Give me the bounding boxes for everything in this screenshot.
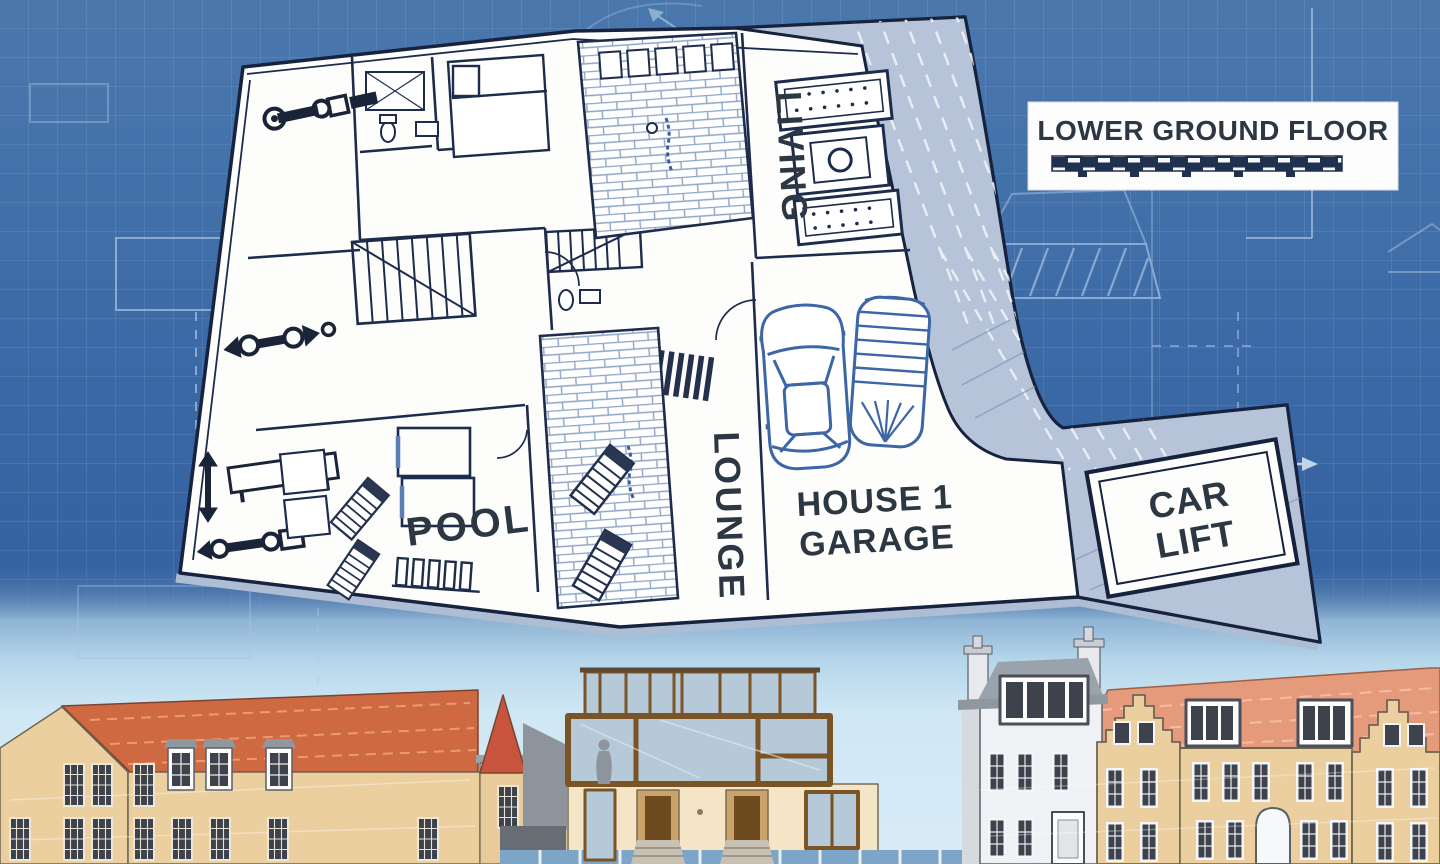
- arched-doorway: [1256, 808, 1290, 864]
- window: [268, 818, 288, 860]
- scene: LIVING POOL LOUNGE HOUSE 1 GARAGE CAR LI…: [0, 0, 1440, 864]
- car-icon: [849, 295, 931, 449]
- window: [10, 818, 30, 860]
- window: [1192, 762, 1210, 802]
- bedroom-bed: [448, 55, 549, 157]
- window: [64, 764, 84, 806]
- window: [1106, 822, 1124, 862]
- room-label-living: LIVING: [768, 90, 816, 224]
- room-label-garage-line2: GARAGE: [798, 518, 955, 564]
- window: [92, 818, 112, 860]
- window: [1016, 818, 1034, 858]
- car-icon: [757, 302, 854, 471]
- window: [988, 752, 1006, 792]
- legend-box: LOWER GROUND FLOOR: [1028, 102, 1398, 190]
- dormer-window: [262, 739, 296, 790]
- window: [210, 818, 230, 860]
- pool-steps-icon: [392, 558, 482, 592]
- window: [1376, 768, 1394, 808]
- window: [1252, 762, 1270, 802]
- flat-dormer: [1298, 700, 1352, 746]
- window: [1410, 768, 1428, 808]
- window: [418, 818, 438, 860]
- glass-door: [585, 790, 615, 860]
- window: [92, 764, 112, 806]
- dormer-window: [164, 739, 198, 790]
- window: [988, 818, 1006, 858]
- blueprint-screenshot: LIVING POOL LOUNGE HOUSE 1 GARAGE CAR LI…: [0, 0, 1440, 864]
- window: [1196, 820, 1214, 860]
- window: [1140, 768, 1158, 808]
- dormer-window: [202, 739, 236, 790]
- window: [1106, 768, 1124, 808]
- window: [498, 786, 518, 828]
- window: [172, 818, 192, 860]
- window: [1016, 752, 1034, 792]
- window: [1376, 822, 1394, 862]
- window: [1330, 820, 1348, 860]
- window: [134, 764, 154, 806]
- window: [1300, 820, 1318, 860]
- flat-dormer: [1186, 700, 1240, 746]
- window: [64, 818, 84, 860]
- window: [1140, 822, 1158, 862]
- legend-title: LOWER GROUND FLOOR: [1037, 115, 1388, 146]
- room-label-lounge: LOUNGE: [706, 431, 753, 601]
- flat-dormer: [1000, 676, 1088, 724]
- window: [1326, 762, 1344, 802]
- window: [1222, 762, 1240, 802]
- window: [134, 818, 154, 860]
- window: [1410, 822, 1428, 862]
- terrace-upper: [578, 33, 753, 238]
- white-house: [958, 627, 1108, 864]
- window: [1296, 762, 1314, 802]
